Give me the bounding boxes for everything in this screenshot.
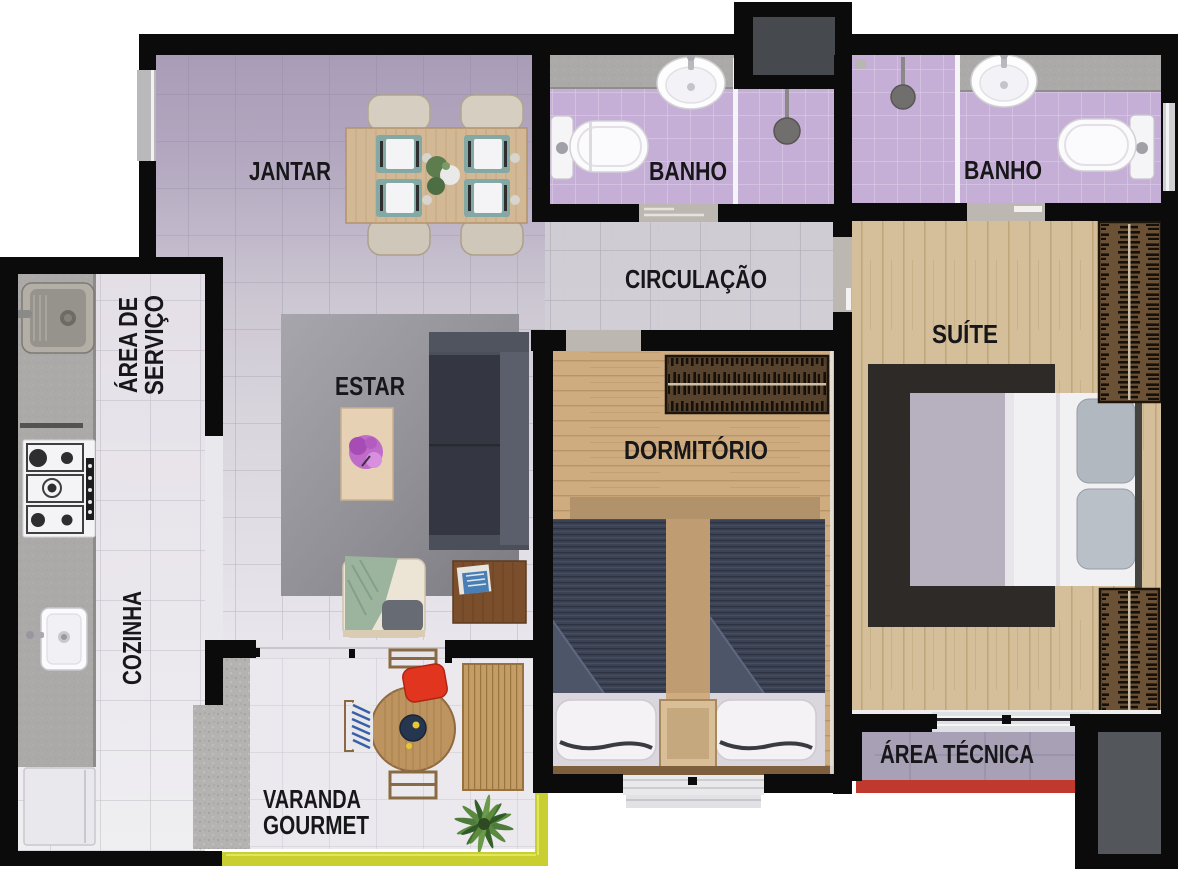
svg-text:BANHO: BANHO <box>964 155 1042 185</box>
svg-text:JANTAR: JANTAR <box>249 156 331 186</box>
svg-text:BANHO: BANHO <box>649 156 727 186</box>
svg-text:COZINHA: COZINHA <box>117 591 147 685</box>
svg-text:ESTAR: ESTAR <box>335 371 405 401</box>
svg-text:CIRCULAÇÃO: CIRCULAÇÃO <box>625 264 767 294</box>
svg-text:ÁREA TÉCNICA: ÁREA TÉCNICA <box>880 739 1034 769</box>
svg-text:DORMITÓRIO: DORMITÓRIO <box>624 435 768 465</box>
svg-text:SERVIÇO: SERVIÇO <box>139 295 169 395</box>
svg-text:GOURMET: GOURMET <box>263 810 369 840</box>
svg-text:SUÍTE: SUÍTE <box>932 319 998 349</box>
